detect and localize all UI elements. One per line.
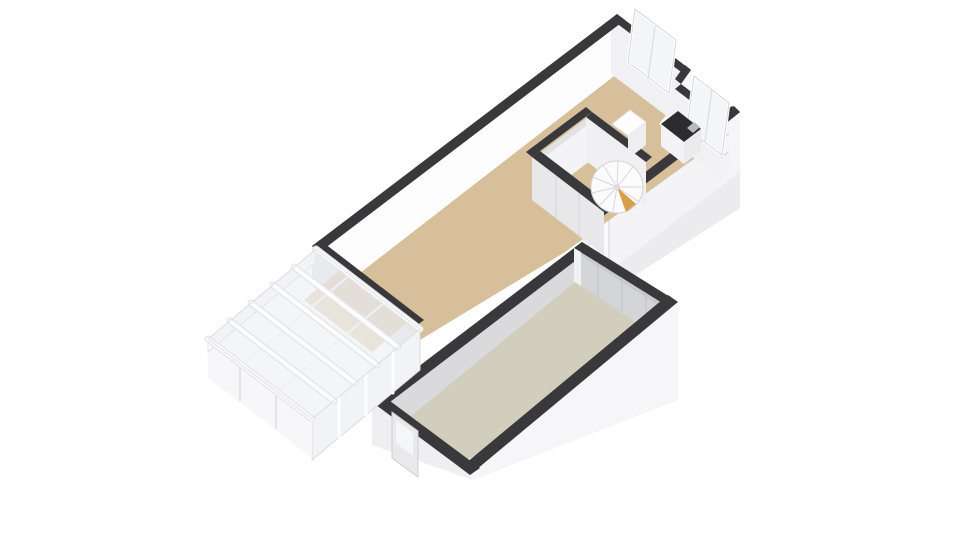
floorplan-3d-render xyxy=(0,0,960,540)
spiral-stair-post xyxy=(614,184,620,190)
east-wall-face xyxy=(729,112,740,172)
floorplan-stage xyxy=(0,0,960,540)
